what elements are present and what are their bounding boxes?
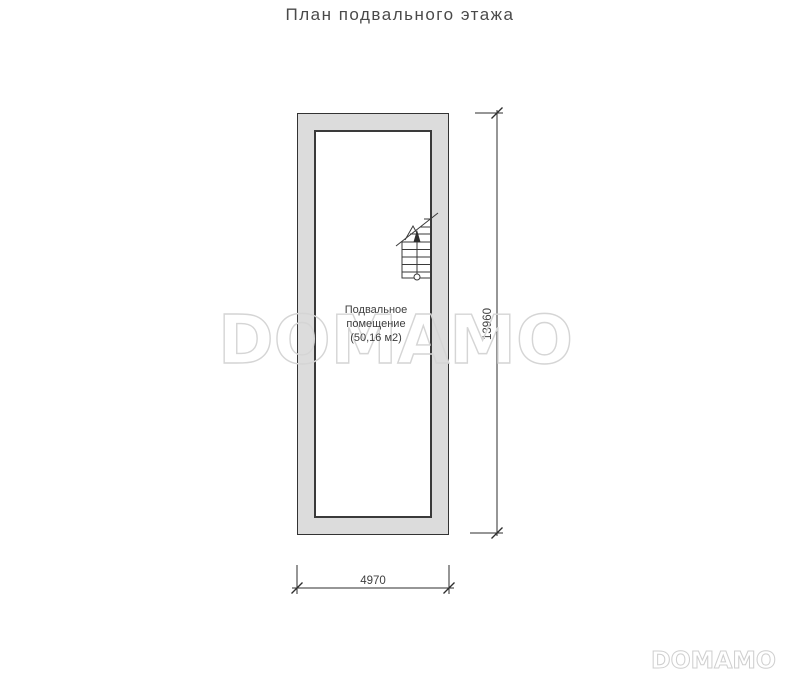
room-name-line1: Подвальное [313,303,439,317]
dimension-horizontal-label: 4970 [360,575,386,587]
floor-plan-page: План подвального этажа [0,0,800,677]
watermark-corner: DOMAMO [651,648,776,674]
room-name-line2: помещение [313,317,439,331]
room-area: (50,16 м2) [313,331,439,345]
room-label: Подвальное помещение (50,16 м2) [313,303,439,345]
stair-start-circle [414,274,420,280]
